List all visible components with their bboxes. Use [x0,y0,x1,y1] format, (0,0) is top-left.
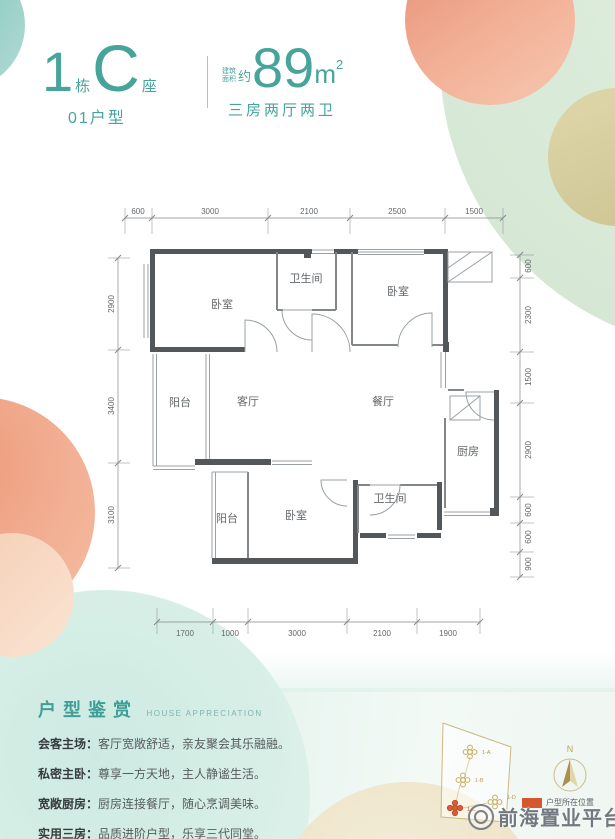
appreciation-item-text: 尊享一方天地，主人静谧生活。 [98,767,266,781]
building-suffix: 栋 [75,78,90,95]
appreciation-item: 会客主场：客厅宽敞舒适，亲友聚会其乐融融。 [38,735,290,752]
appreciation-title-en: HOUSE APPRECIATION [146,709,262,718]
appreciation-item: 宽敞厨房：厨房连接餐厅，随心烹调美味。 [38,795,290,812]
dim-top-2: 2100 [300,207,318,216]
dim-right-5: 600 [524,530,533,544]
room-label-bathroom-2: 卫生间 [374,491,407,505]
dim-right-4: 600 [524,503,533,517]
dim-top-3: 2500 [388,207,406,216]
appreciation-item-label: 宽敞厨房： [38,797,98,811]
appreciation-item: 实用三房：品质进阶户型，乐享三代同堂。 [38,825,290,839]
dim-bottom-3: 2100 [373,629,391,638]
dim-left-1: 3400 [107,397,116,415]
dim-bottom-1: 1000 [221,629,239,638]
block-letter: C [92,31,140,105]
dimension-labels: 600 3000 2100 2500 1500 1700 1000 3000 2… [107,207,533,638]
brochure-page: 1栋C座 01户型 建筑 面积 约 89 m2 三房两厅两卫 [0,0,615,839]
room-label-bedroom-3: 卧室 [285,508,307,522]
building-title: 1栋C座 01户型 [42,40,159,128]
appreciation-section: 户型鉴赏 HOUSE APPRECIATION 会客主场：客厅宽敞舒适，亲友聚会… [38,696,290,839]
dim-top-4: 1500 [465,207,483,216]
floorplan-svg: 600 3000 2100 2500 1500 1700 1000 3000 2… [100,192,540,652]
compass-n-label: N [567,744,574,754]
room-label-bedroom-1: 卧室 [211,297,233,311]
appreciation-title-row: 户型鉴赏 HOUSE APPRECIATION [38,696,290,722]
exterior-walls [150,249,499,564]
dim-right-2: 1500 [524,368,533,386]
room-label-living-room: 客厅 [237,394,259,408]
room-label-dining-room: 餐厅 [372,394,394,408]
building-label-d: 1-D [507,795,516,801]
appreciation-item-label: 会客主场： [38,737,98,751]
building-number: 1 [42,40,73,103]
area-small-line2: 面积 [222,76,236,84]
area-block: 建筑 面积 约 89 m2 三房两厅两卫 [222,42,343,120]
dim-bottom-4: 1900 [439,629,457,638]
dim-left-2: 3100 [107,506,116,524]
compass-needle-dark [562,759,570,787]
room-label-bathroom-1: 卫生间 [290,271,323,285]
appreciation-item-label: 私密主卧： [38,767,98,781]
area-unit-sup: 2 [336,57,343,72]
appreciation-item-text: 厨房连接餐厅，随心烹调美味。 [98,797,266,811]
area-small-line1: 建筑 [222,68,236,76]
header-divider [207,56,208,108]
area-value: 89 [252,42,314,94]
compass-needle-light [570,759,578,787]
room-label-balcony-2: 阳台 [216,511,238,525]
room-label-bedroom-2: 卧室 [387,284,409,298]
room-label-balcony-1: 阳台 [169,395,191,409]
decor-circle-teal-corner [0,0,25,90]
dimension-lines [108,208,534,634]
layout-label: 三房两厅两卫 [228,99,343,120]
brand-logo-icon [468,804,494,830]
dim-top-0: 600 [131,207,145,216]
brand-watermark: 前海置业平台 [468,802,615,831]
appreciation-title: 户型鉴赏 [38,700,138,720]
dim-right-0: 600 [524,259,533,273]
dim-right-3: 2900 [524,441,533,459]
dim-bottom-2: 3000 [288,629,306,638]
appreciation-item-label: 实用三房： [38,827,98,839]
room-label-kitchen: 厨房 [457,445,479,458]
appreciation-item-text: 客厅宽敞舒适，亲友聚会其乐融融。 [98,737,290,751]
area-unit: m2 [314,57,343,90]
building-label-b: 1-B [475,778,484,784]
dim-left-0: 2900 [107,295,116,313]
area-unit-base: m [314,59,336,89]
area-approx: 约 [238,66,251,85]
dim-bottom-0: 1700 [176,629,194,638]
unit-label: 01户型 [68,104,159,128]
appreciation-item-text: 品质进阶户型，乐享三代同堂。 [98,827,266,839]
building-label-a: 1-A [482,750,491,756]
brand-watermark-text: 前海置业平台 [498,802,615,831]
dim-right-1: 2300 [524,306,533,324]
appreciation-item: 私密主卧：尊享一方天地，主人静谧生活。 [38,765,290,782]
area-small-label: 建筑 面积 [222,68,236,84]
dim-right-6: 900 [524,557,533,571]
compass: N [554,744,586,791]
block-suffix: 座 [142,78,157,95]
dim-top-1: 3000 [201,207,219,216]
